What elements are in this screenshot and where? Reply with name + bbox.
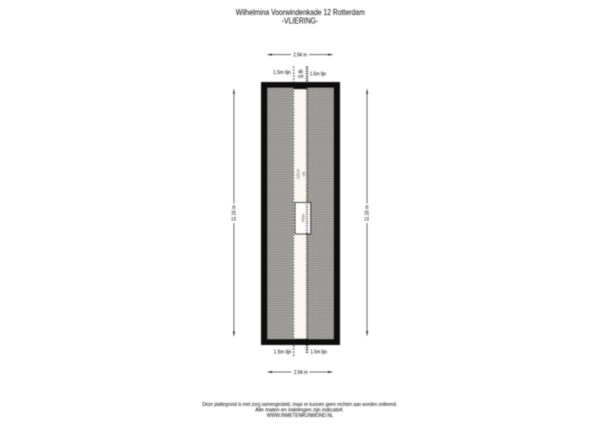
- svg-text:115cm: 115cm: [296, 169, 301, 180]
- svg-text:nok: nok: [301, 171, 306, 176]
- svg-text:11.16 m: 11.16 m: [232, 205, 238, 221]
- svg-text:Vlizo: Vlizo: [300, 213, 305, 222]
- svg-text:1.5m lijn: 1.5m lijn: [274, 349, 292, 355]
- svg-text:WWW.INMETENRIJNMOND.NL: WWW.INMETENRIJNMOND.NL: [267, 413, 334, 419]
- svg-text:11.16 m: 11.16 m: [364, 205, 370, 221]
- svg-text:1.5m lijn: 1.5m lijn: [310, 72, 327, 78]
- svg-text:1.5m lijn: 1.5m lijn: [310, 349, 327, 355]
- svg-text:1.5m lijn: 1.5m lijn: [273, 70, 291, 76]
- svg-text:2.94 m: 2.94 m: [294, 370, 308, 376]
- svg-text:2.94 m: 2.94 m: [293, 53, 307, 59]
- svg-text:-VLIERING-: -VLIERING-: [282, 16, 319, 26]
- svg-text:cm: cm: [298, 74, 304, 80]
